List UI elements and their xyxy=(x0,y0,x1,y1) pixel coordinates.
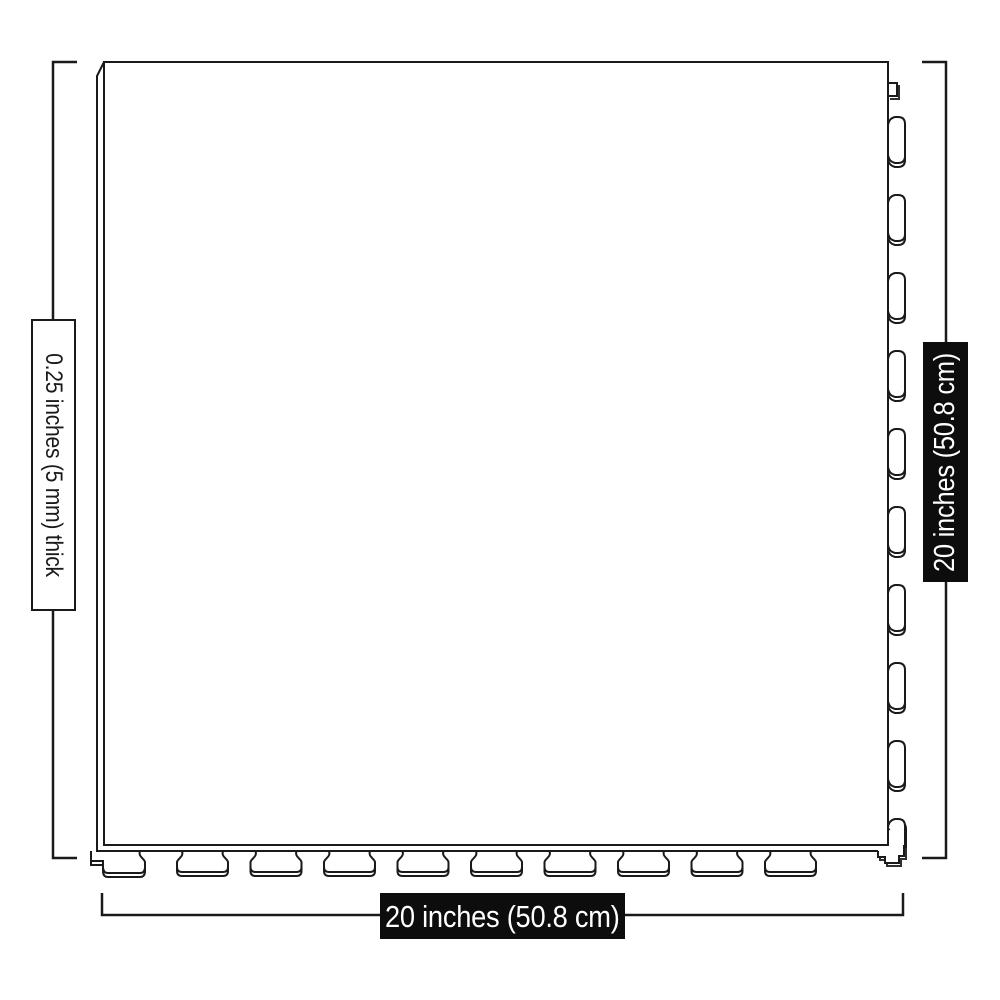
height-dimension-label: 20 inches (50.8 cm) xyxy=(923,342,968,582)
thickness-label: 0.25 inches (5 mm) thick xyxy=(31,319,76,611)
tile-face xyxy=(104,62,888,845)
width-dimension-label: 20 inches (50.8 cm) xyxy=(380,893,625,939)
tile-technical-drawing xyxy=(0,0,1000,1000)
tile-dimension-diagram: 0.25 inches (5 mm) thick 20 inches (50.8… xyxy=(0,0,1000,1000)
height-dimension-label-text: 20 inches (50.8 cm) xyxy=(931,352,960,571)
tile-outline xyxy=(97,62,888,851)
top-right-bump xyxy=(888,83,899,99)
width-dimension-label-text: 20 inches (50.8 cm) xyxy=(385,901,620,932)
corner-step xyxy=(878,845,906,866)
thickness-label-text: 0.25 inches (5 mm) thick xyxy=(42,353,66,577)
